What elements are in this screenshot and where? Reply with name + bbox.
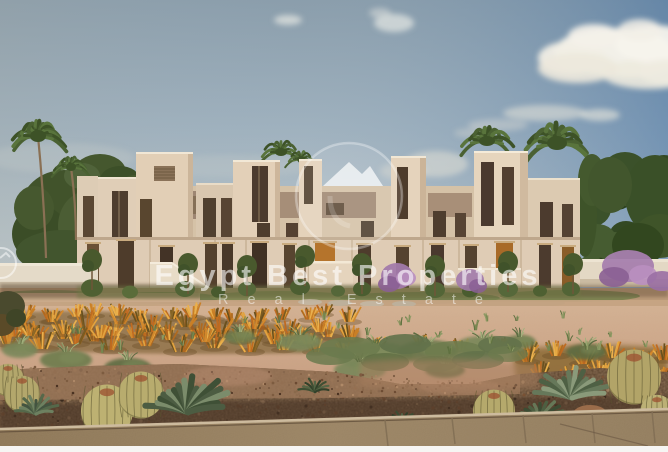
- svg-text:Egypt Best Properties: Egypt Best Properties: [155, 260, 542, 292]
- svg-text:Real Estate: Real Estate: [218, 292, 502, 308]
